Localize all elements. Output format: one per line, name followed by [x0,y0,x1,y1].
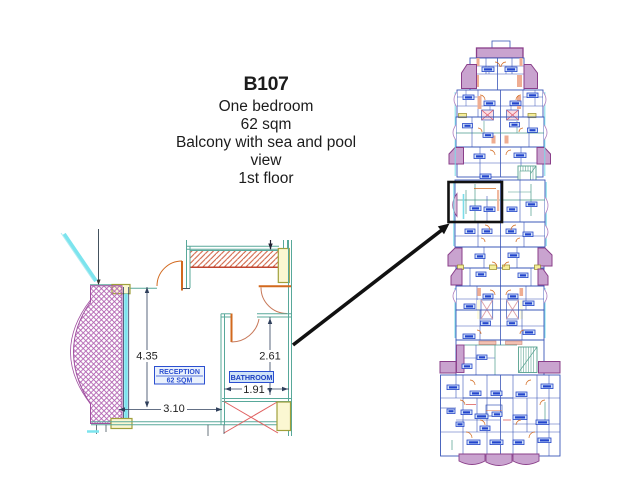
svg-text:3.10: 3.10 [163,403,184,415]
svg-text:2.61: 2.61 [259,351,280,363]
svg-text:BATHROOM: BATHROOM [231,373,273,382]
svg-text:62 SQM: 62 SQM [167,378,193,385]
svg-text:RECEPTION: RECEPTION [159,369,200,376]
svg-text:1.91: 1.91 [243,384,264,396]
svg-text:4.35: 4.35 [136,351,157,363]
